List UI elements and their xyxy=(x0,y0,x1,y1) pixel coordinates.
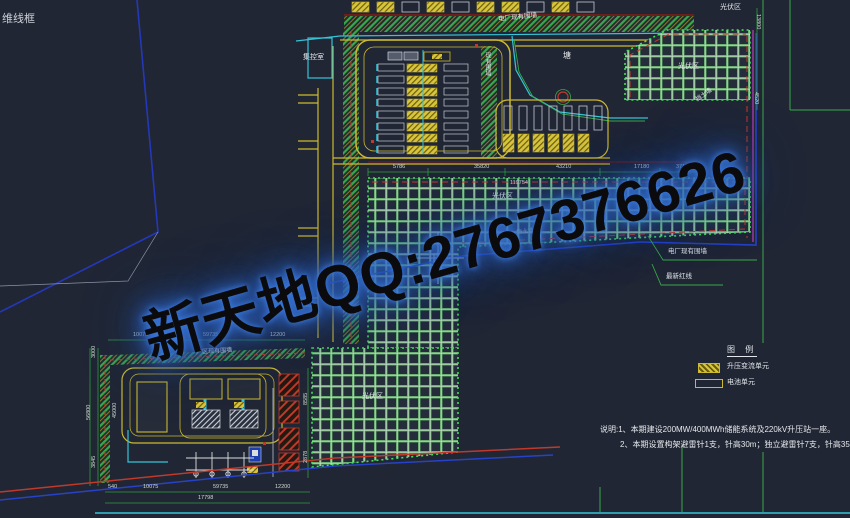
leader-redline-label: 最新红线 xyxy=(666,274,692,281)
viewport-style-label: 维线框 xyxy=(2,14,35,25)
cad-viewport[interactable]: 维线框 集控室 塘 光伏区 光伏区 光伏区 光伏区 电厂现有围墙 现有围墙 挡土… xyxy=(0,0,850,518)
control-room-label: 集控室 xyxy=(303,54,324,61)
existing-wall-label-vertical: 现有围墙 xyxy=(484,52,490,76)
pv-grid-bottom xyxy=(312,348,458,467)
substation xyxy=(122,368,299,478)
pv-area-label-4: 光伏区 xyxy=(362,393,383,400)
dim-sub-bot-4: 12200 xyxy=(275,485,290,491)
notes-line-2: 2、本期设置构架避雷针1支，针高30m；独立避雷针7支，针高35m。 xyxy=(620,441,850,449)
leader-existing-wall-label: 电厂现有围墙 xyxy=(668,249,707,256)
pv-area-label-1: 光伏区 xyxy=(720,4,741,11)
gantry-symbols xyxy=(186,452,254,478)
dim-sub-left-3: 3845 xyxy=(92,456,98,468)
battery-unit-swatch xyxy=(695,379,723,388)
pv-area-label-2: 光伏区 xyxy=(678,63,699,70)
dim-sub-left-inner: 45000 xyxy=(113,403,119,418)
pond-label: 塘 xyxy=(563,52,571,60)
legend-item-label: 电池单元 xyxy=(727,379,755,386)
boundary-lines-upper-left xyxy=(0,0,158,312)
dim-sub-bot-3: 59735 xyxy=(213,485,228,491)
dim-sub-bot-1: 540 xyxy=(108,485,117,491)
dim-right-1: 13800 xyxy=(755,14,761,29)
roundabout xyxy=(556,90,571,105)
dim-sub-left-2: 56800 xyxy=(87,405,93,420)
step-up-converter-unit-swatch xyxy=(698,363,720,373)
dim-right-2: 4520 xyxy=(753,92,759,104)
dim-sub-bot-total: 17798 xyxy=(198,496,213,502)
dim-sub-bot-2: 10075 xyxy=(143,485,158,491)
dim-sub-right-2: 2878 xyxy=(304,451,310,463)
transformer-bays xyxy=(279,374,299,471)
dim-band-2: 35820 xyxy=(474,165,489,171)
dim-sub-left-1: 3000 xyxy=(92,346,98,358)
notes-line-1: 说明:1、本期建设200MW/400MWh储能系统及220kV升压站一座。 xyxy=(600,426,835,434)
inverter-cluster xyxy=(496,100,608,158)
dim-sub-right-1: 8585 xyxy=(304,393,310,405)
top-unit-row xyxy=(352,2,594,12)
dim-band-1: 5786 xyxy=(393,165,405,171)
legend-title: 图 例 xyxy=(727,346,757,357)
legend-item-label: 升压变流单元 xyxy=(727,363,769,370)
